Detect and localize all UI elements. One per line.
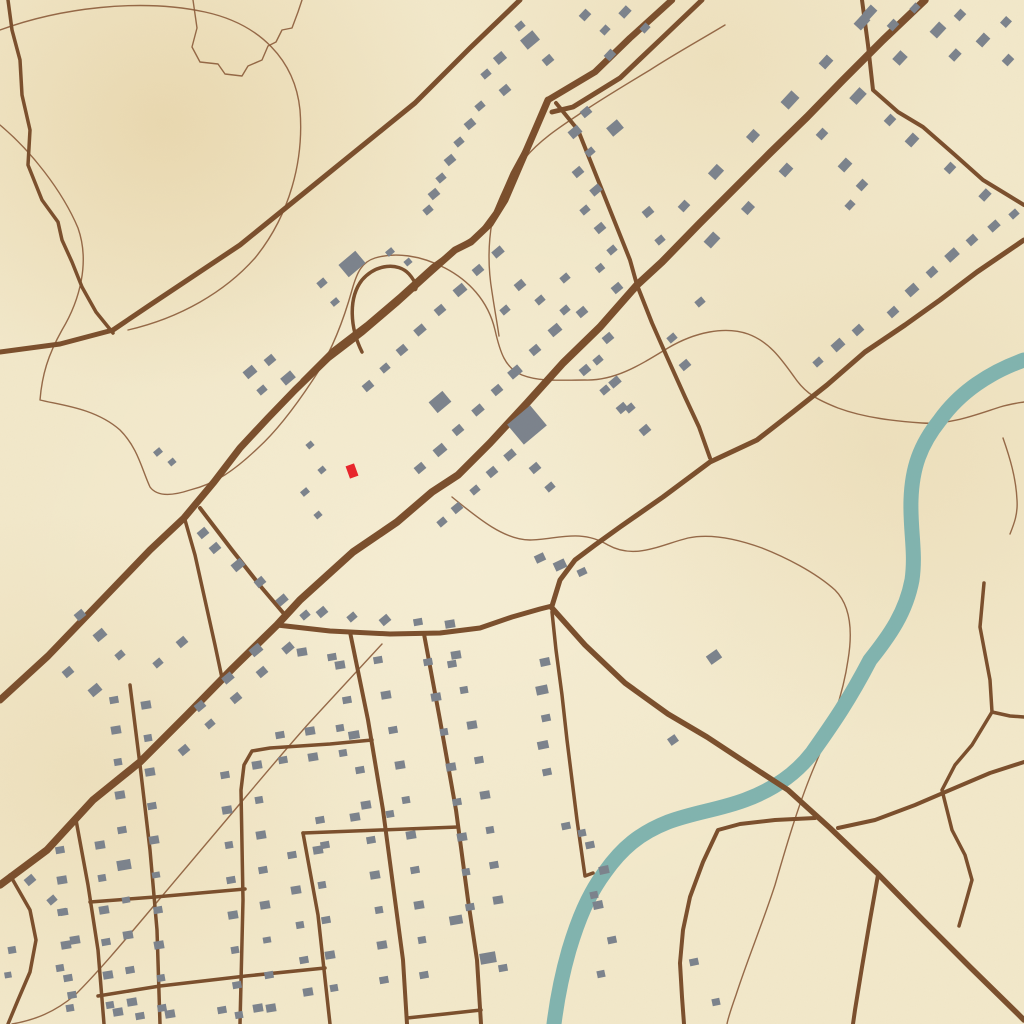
map-canvas xyxy=(0,0,1024,1024)
map-viewport[interactable] xyxy=(0,0,1024,1024)
paper-grain-overlay xyxy=(0,0,1024,1024)
